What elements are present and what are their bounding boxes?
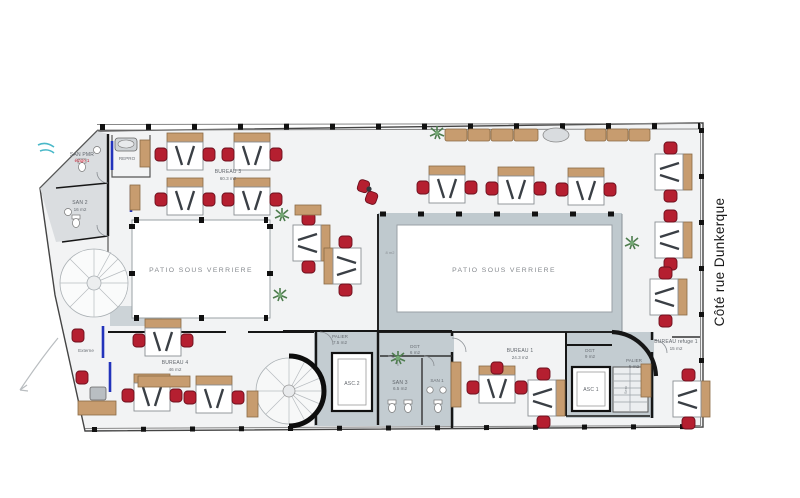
- bureau3-label: BUREAU 3: [215, 169, 242, 175]
- floor-plan-page: PATIO SOUS VERRIERE PATIO SOUS VERRIERE …: [0, 0, 800, 498]
- palier-right-label: PALIER: [626, 358, 643, 363]
- bureau-refuge1-label: BUREAU refuge 1: [654, 339, 698, 345]
- patio-edge-area-label: 8 m2: [386, 250, 396, 255]
- printer: [90, 387, 106, 400]
- dgt-center-label: DGT: [410, 344, 420, 349]
- palier-center-area: 7.5 m2: [333, 340, 347, 345]
- dgt-right-label: DGT: [585, 348, 595, 353]
- san2-area: 16 m2: [74, 207, 87, 212]
- patio-right-label: PATIO SOUS VERRIERE: [452, 267, 556, 274]
- patio-left-label: PATIO SOUS VERRIERE: [149, 267, 253, 274]
- teal-scribble: [38, 143, 54, 153]
- bureau-refuge1-area: 15 m2: [670, 346, 683, 351]
- arrow-sketch: [20, 338, 58, 391]
- elevator-asc1: ASC 1: [572, 367, 610, 411]
- bureau4-area: 46 m2: [169, 367, 182, 372]
- floor-plan-svg: PATIO SOUS VERRIERE PATIO SOUS VERRIERE …: [0, 0, 800, 498]
- asc1-label: ASC 1: [583, 387, 598, 393]
- san2-label: SAN 2: [72, 200, 87, 206]
- bureau1-area: 24.3 m2: [512, 355, 529, 360]
- stair-spiral-left: [60, 249, 128, 317]
- palier-right-area: 5 m2: [629, 364, 640, 369]
- elevator-asc2: ASC.2: [332, 353, 372, 411]
- san3-area: 6.5 m2: [393, 386, 407, 391]
- san-pmr-note: étage 1: [75, 158, 90, 163]
- san1-label: SAN 1: [430, 378, 444, 383]
- bureau1-label: BUREAU 1: [507, 348, 534, 354]
- externe-label: Externe: [78, 348, 94, 353]
- patio-left: PATIO SOUS VERRIERE: [132, 220, 270, 318]
- asc2-label: ASC.2: [344, 381, 359, 387]
- dgt-center-area: 6 m2: [410, 350, 421, 355]
- round-table: [543, 128, 569, 142]
- dgt-right-area: 9 m2: [585, 354, 596, 359]
- bureau3-area: 60.3 m2: [220, 176, 237, 181]
- palier-center-label: PALIER: [332, 334, 349, 339]
- bureau4-label: BUREAU 4: [162, 360, 189, 366]
- street-label: Côté rue Dunkerque: [712, 198, 727, 327]
- serv-label: Serv: [623, 386, 628, 394]
- repro-label: REPRO: [119, 156, 136, 161]
